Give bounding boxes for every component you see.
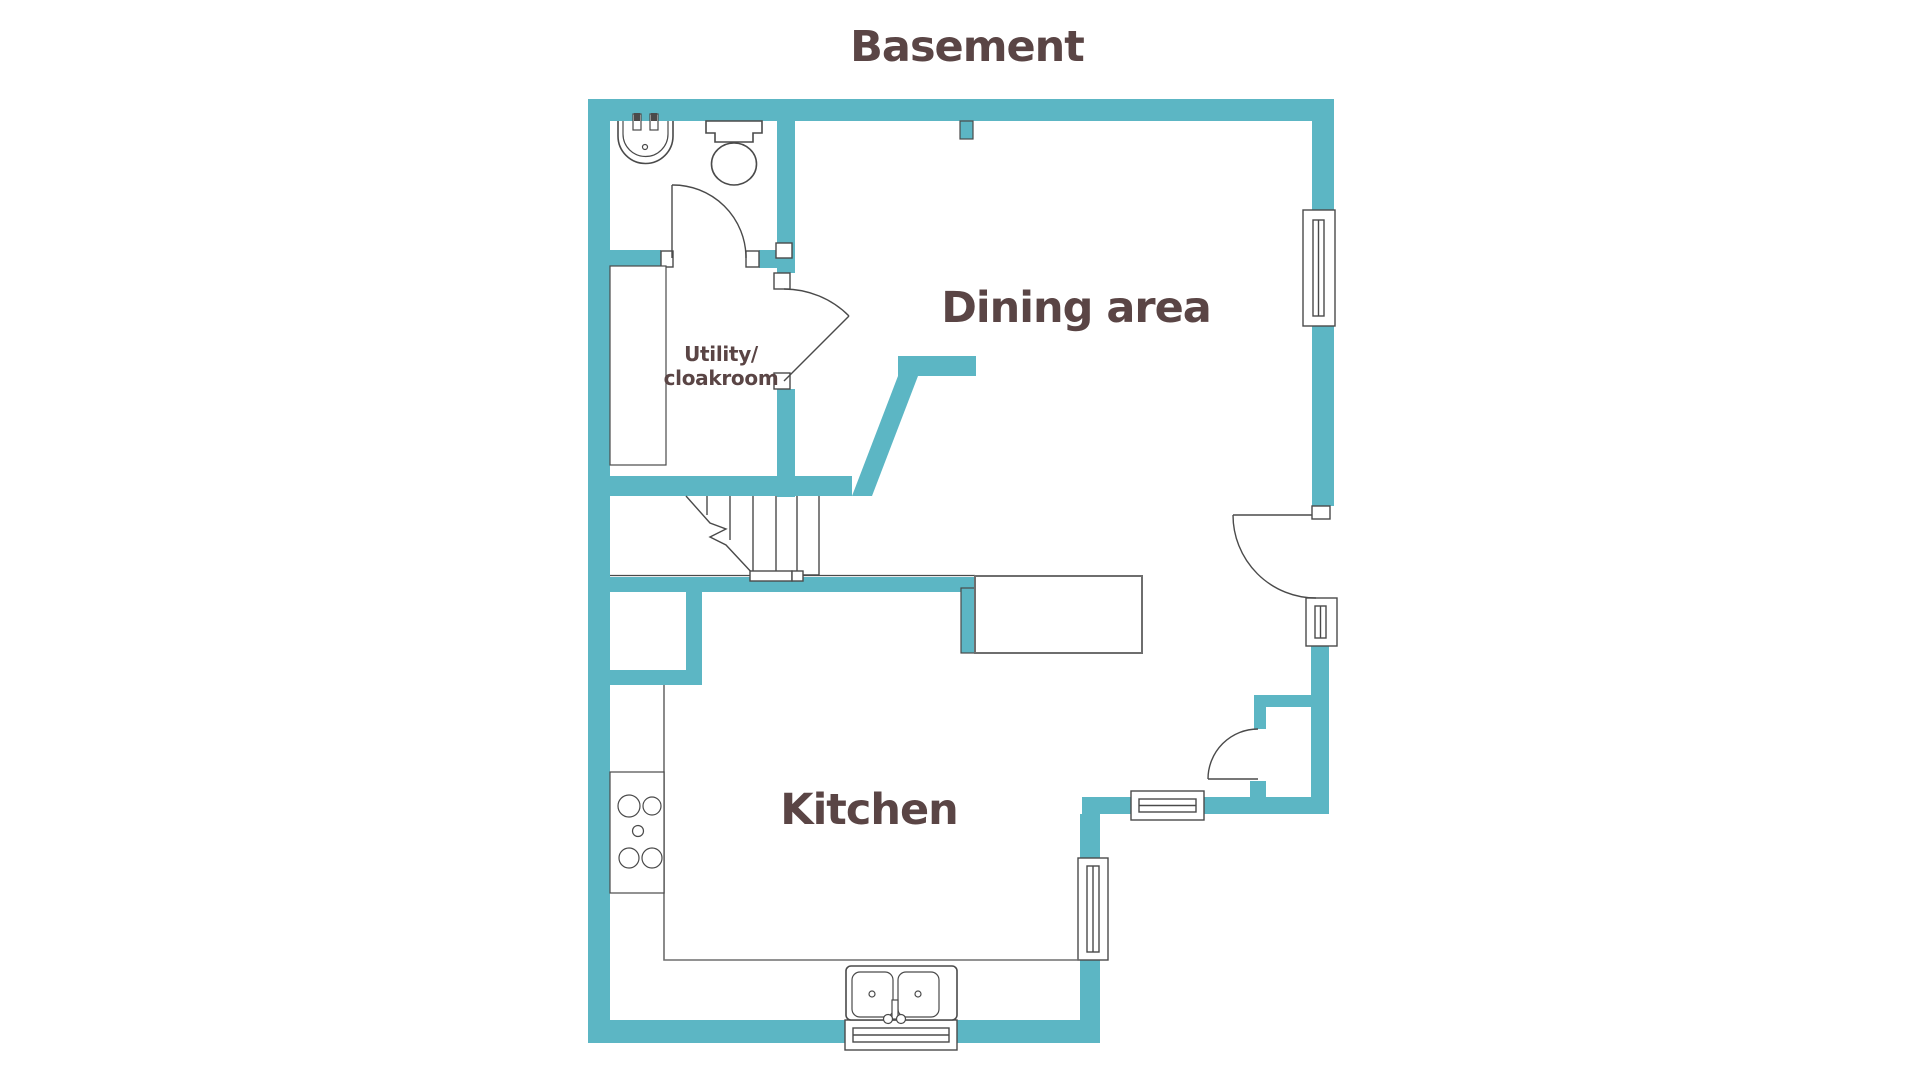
page-title: Basement: [850, 22, 1084, 72]
jamb: [774, 273, 790, 289]
door-dining-east: [1233, 515, 1316, 598]
window-dining-east: [1303, 210, 1335, 326]
room-label-dining: Dining area: [941, 283, 1211, 333]
wall-left: [588, 99, 610, 1043]
room-label-kitchen: Kitchen: [780, 785, 958, 835]
stair-newel: [792, 571, 803, 581]
room-label-utility-line1: Utility/: [684, 342, 759, 366]
stove-icon: [610, 772, 664, 893]
floor-plan-canvas: Basement: [0, 0, 1920, 1080]
window-kitchen-east: [1078, 858, 1108, 960]
wc-fixtures: [618, 113, 762, 185]
jamb: [776, 243, 792, 258]
wall-mid-horizontal: [898, 356, 976, 376]
stair-break-line: [686, 496, 754, 575]
wall-door-stub: [1250, 781, 1266, 797]
double-sink-icon: [846, 966, 957, 1024]
window-kitchen-south: [845, 1020, 957, 1050]
wall-nook-vertical: [1254, 707, 1266, 729]
wall-top-stub: [960, 121, 973, 139]
recess-void: [610, 592, 686, 670]
window-below-door: [1306, 598, 1337, 646]
wall-bottom: [588, 1020, 1100, 1043]
room-label-utility-line2: cloakroom: [664, 366, 779, 390]
wall-nook-horizontal: [1254, 695, 1311, 707]
wall-right-mid: [1311, 646, 1329, 814]
wall-counter-stub: [961, 588, 976, 653]
jamb: [661, 251, 673, 267]
jamb: [746, 251, 759, 267]
floor-plan-svg: Basement: [0, 0, 1920, 1080]
wall-diagonal: [852, 376, 918, 496]
door-wc: [672, 185, 746, 258]
stairs: [686, 496, 819, 581]
wall-top: [588, 99, 1334, 121]
door-utility: [784, 289, 849, 381]
toilet-icon: [706, 121, 762, 185]
jamb: [1312, 506, 1330, 519]
door-entrance-step: [1208, 729, 1258, 779]
utility-counter: [610, 266, 666, 465]
walls: [588, 99, 1334, 1043]
wall-wc-bottom-left: [588, 250, 661, 268]
window-step-wall: [1131, 791, 1204, 820]
wall-step-bottom: [1082, 797, 1329, 814]
stair-landing-bar: [750, 571, 792, 581]
kitchen-island-counter: [975, 576, 1142, 653]
wall-utility-bottom: [588, 476, 852, 496]
